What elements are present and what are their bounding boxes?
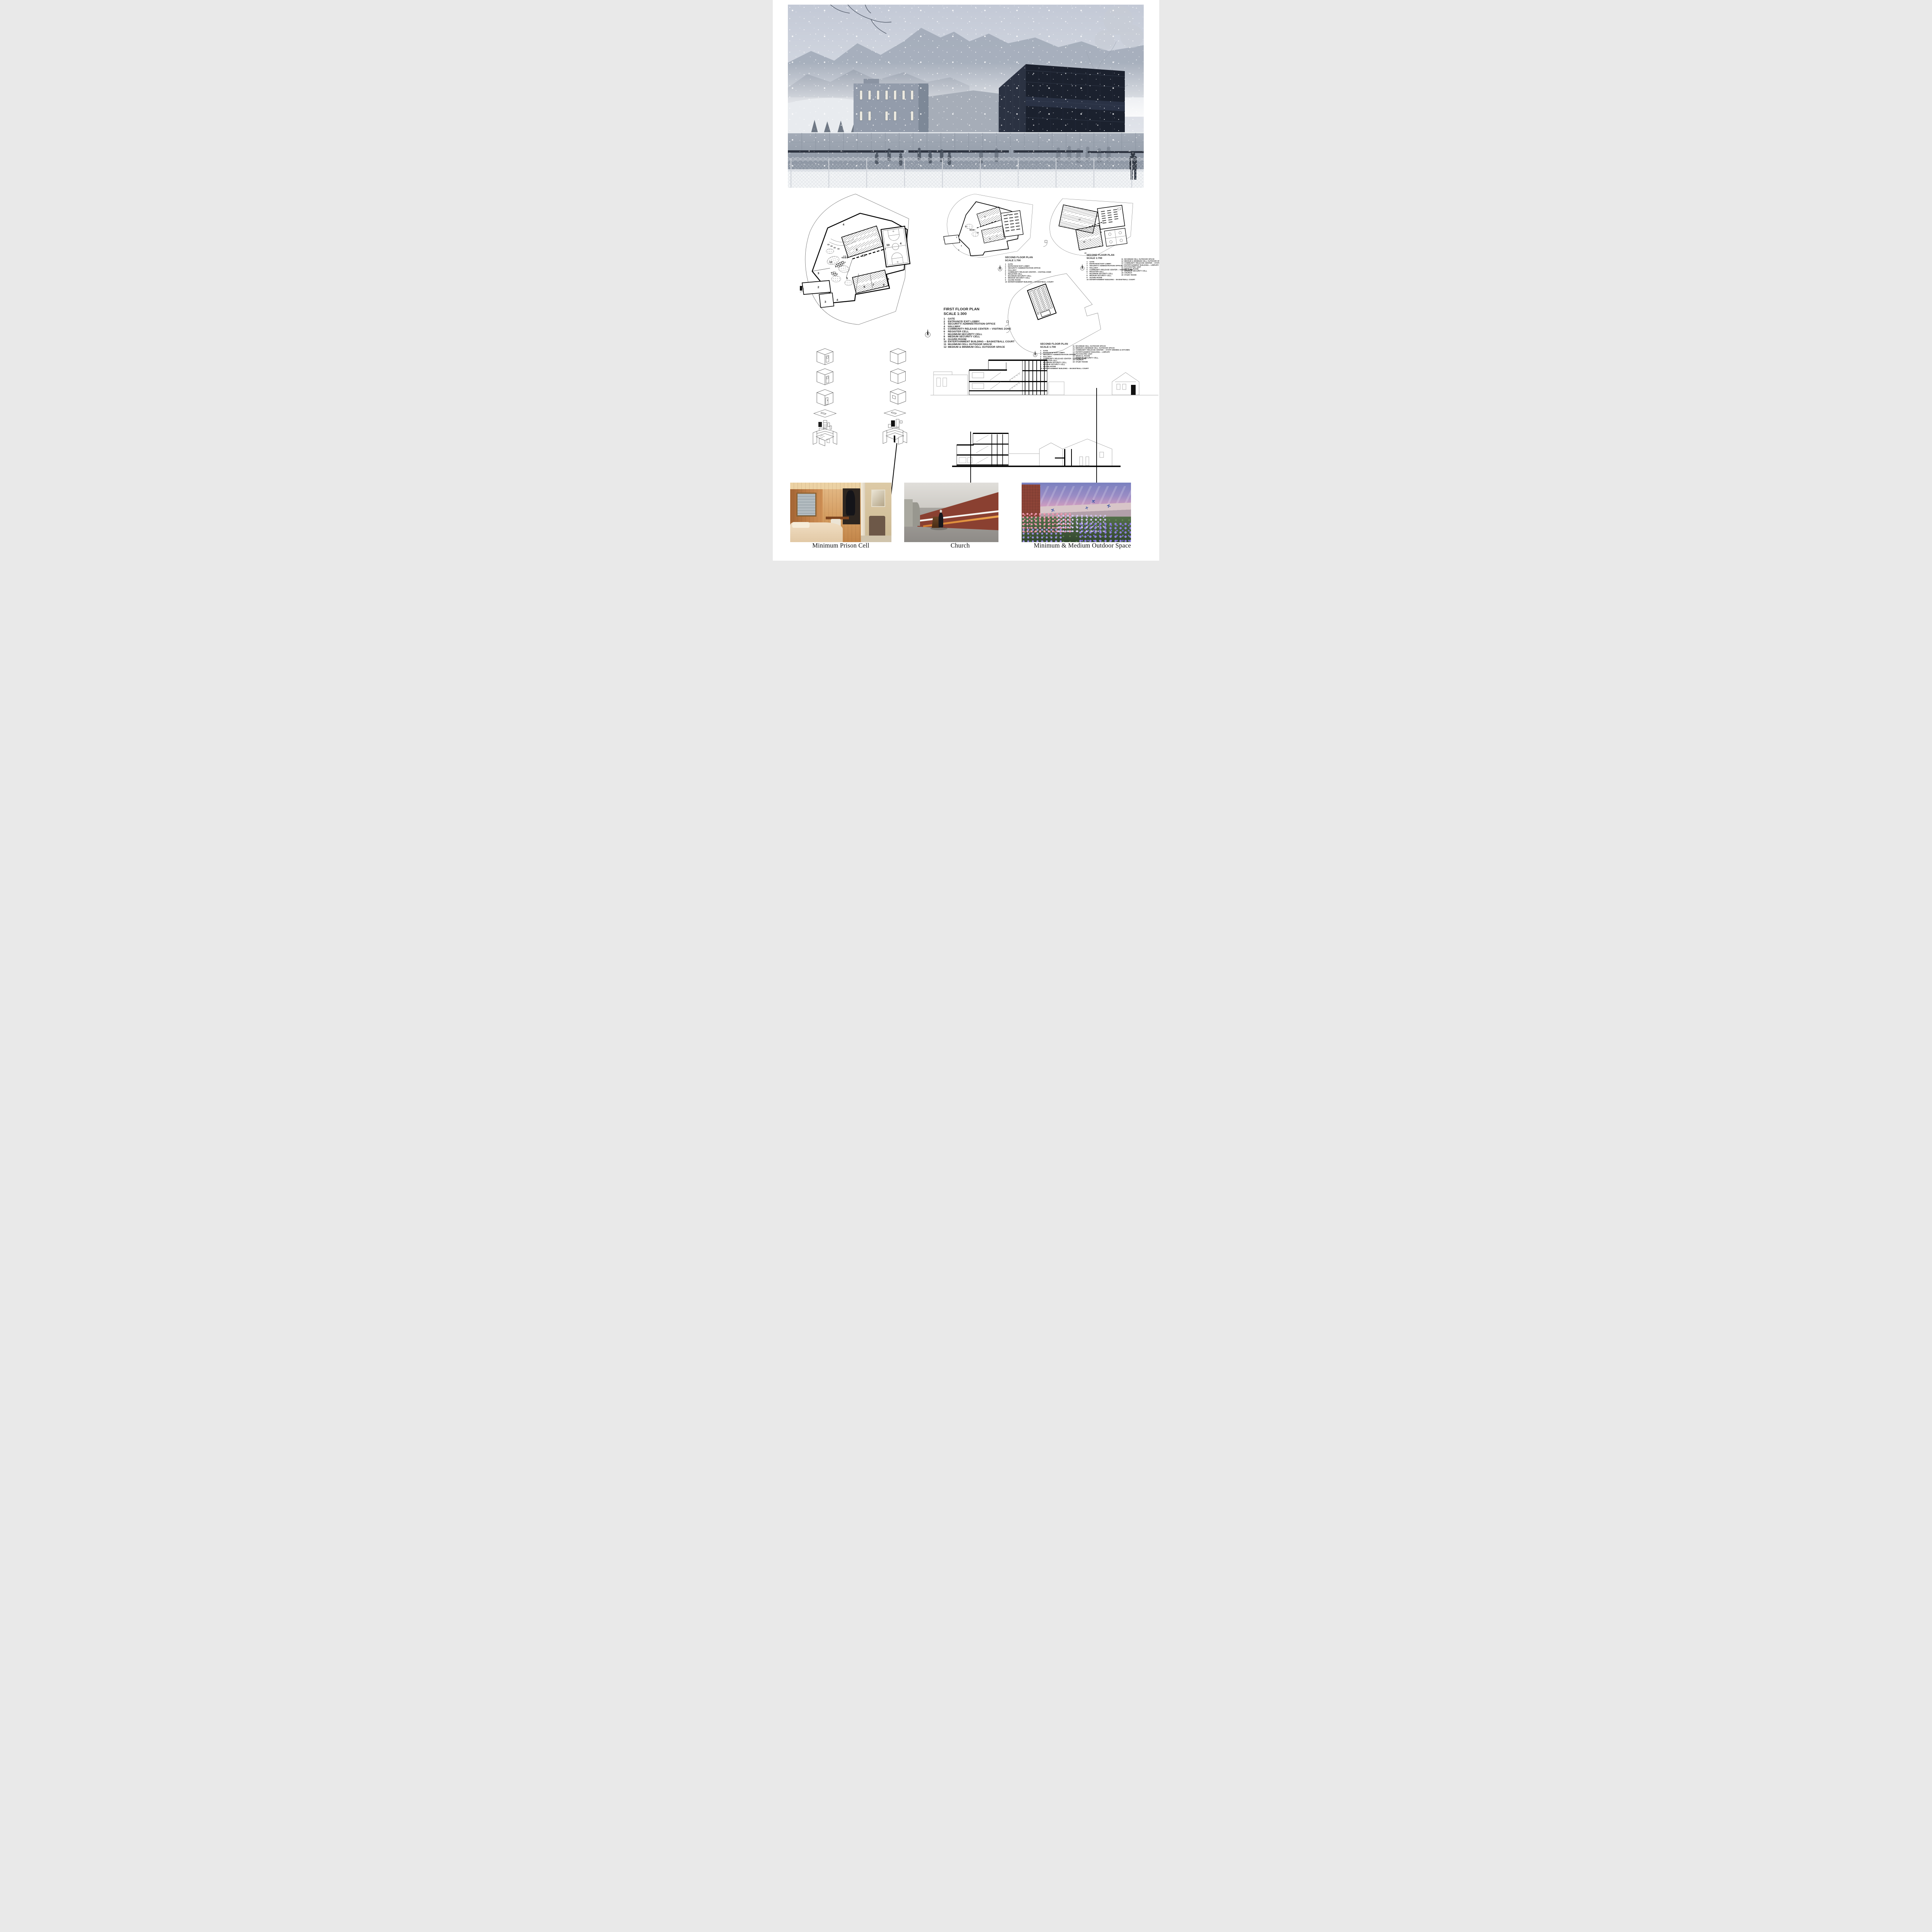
plan-room-number: 1 xyxy=(944,238,945,241)
north-compass-top: N xyxy=(997,264,1003,272)
second-floor-plan-right-drawing: 171819716159 xyxy=(1039,195,1141,260)
plan-room-number: 9 xyxy=(883,283,884,287)
second-floor-right-legend-ext: 11MAXIMUM CELL OUTDOOR SPACE12MEDIUM & M… xyxy=(1121,258,1159,280)
photo-church xyxy=(904,483,998,542)
second-floor-plan-top-drawing: 4814111312267314 xyxy=(938,191,1037,260)
north-compass-right: N xyxy=(1080,264,1085,271)
hero-rendering xyxy=(788,5,1144,188)
north-compass-mid: N xyxy=(1032,350,1038,358)
plan-room-number: 12 xyxy=(829,260,832,264)
plan-room-number: 7 xyxy=(997,235,998,238)
plan-room-number: 2 xyxy=(956,236,957,238)
cell-cube-plain-2 xyxy=(889,368,907,384)
hero-rendering-art xyxy=(788,5,1144,188)
plan-room-number: 7 xyxy=(872,283,874,287)
plan-room-number: 18 xyxy=(1096,215,1098,217)
plan-room-number: 3 xyxy=(825,300,826,304)
purple-flowers xyxy=(1078,522,1131,542)
plan-room-number: 17 xyxy=(1078,218,1080,221)
bathroom-mirror xyxy=(871,490,886,507)
cell-cube-door-2 xyxy=(815,368,835,386)
cell-cube-plain-1 xyxy=(889,348,907,365)
caption-outdoor-space: Minimum & Medium Outdoor Space xyxy=(1022,542,1131,549)
plan-room-number: 10 xyxy=(886,243,889,247)
second-floor-right-title: SECOND FLOOR PLAN xyxy=(1087,253,1159,257)
compass-label: N xyxy=(1034,354,1036,356)
plan-room-number: 14 xyxy=(1007,213,1009,216)
section-drawing-lower xyxy=(951,427,1121,470)
compass-label: N xyxy=(999,268,1000,270)
cell-cube-window xyxy=(889,388,907,405)
first-floor-plan-drawing: 1233444456789101112 xyxy=(794,191,935,344)
plan-room-number: 6 xyxy=(990,238,991,240)
plan-room-number: 17 xyxy=(1037,313,1039,315)
section-drawing-upper xyxy=(930,358,1158,398)
presentation-board: 1233444456789101112 FIRST FLOOR PLAN SCA… xyxy=(773,0,1159,561)
caption-minimum-prison-cell: Minimum Prison Cell xyxy=(790,542,891,549)
plan-room-number: 3 xyxy=(961,245,962,247)
plan-room-number: 12 xyxy=(965,225,967,228)
plan-room-number: 8 xyxy=(856,248,857,252)
plan-room-number: 4 xyxy=(888,277,889,281)
compass-label: N xyxy=(927,334,929,337)
toilet-unit xyxy=(869,516,885,538)
plan-room-number: 11 xyxy=(991,221,993,224)
plan-room-number: 4 xyxy=(900,242,901,245)
plan-room-number: 19 xyxy=(1100,231,1102,233)
plan-room-number: 1 xyxy=(801,287,802,290)
plan-room-number: 6 xyxy=(864,285,865,289)
exploded-cell-axon-right xyxy=(881,409,909,448)
cell-cube-door-3 xyxy=(815,389,835,406)
exploded-cell-axon-left xyxy=(810,409,840,450)
photo-minimum-prison-cell xyxy=(790,483,891,542)
priest-figure xyxy=(939,512,943,527)
plan-room-number: 16 xyxy=(1083,241,1085,243)
plan-room-number: 9 xyxy=(1099,245,1100,247)
hanging-coat xyxy=(846,490,855,515)
plan-room-number: 11 xyxy=(862,254,865,257)
second-floor-right-ext-list: 11MAXIMUM CELL OUTDOOR SPACE12MEDIUM & M… xyxy=(1121,258,1159,276)
plan-room-number: 4 xyxy=(958,249,959,251)
plan-room-number: 13 xyxy=(976,231,978,234)
north-compass-first: N xyxy=(924,328,931,338)
plan-room-number: 5 xyxy=(846,277,848,280)
plan-room-number: 7 xyxy=(1090,239,1091,241)
plan-room-number: 4 xyxy=(975,202,976,204)
plan-room-number: 15 xyxy=(1084,252,1086,254)
snowfall-large xyxy=(788,5,1144,188)
compass-label: N xyxy=(1082,267,1083,269)
plan-room-number: 4 xyxy=(837,298,838,302)
plan-room-number: 4 xyxy=(843,223,844,226)
plan-room-number: 8 xyxy=(985,216,986,218)
plan-room-number: 2 xyxy=(818,286,819,289)
photo-outdoor-space xyxy=(1022,483,1131,542)
caption-church: Church xyxy=(904,542,998,549)
cell-window xyxy=(796,493,816,517)
plan-room-number: 3 xyxy=(818,272,819,275)
cell-cube-door-1 xyxy=(815,348,835,366)
